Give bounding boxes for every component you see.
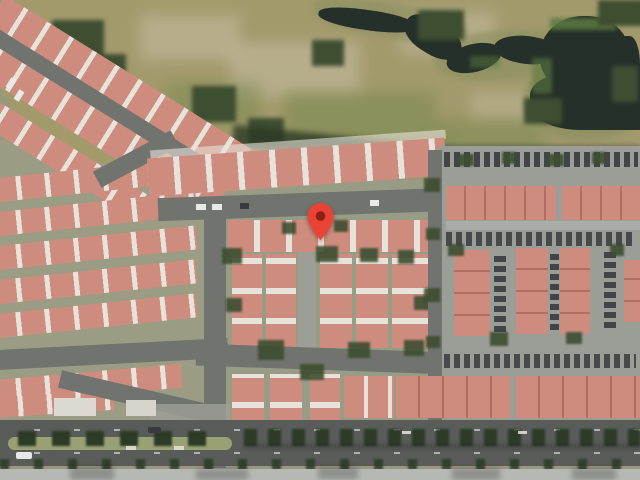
- townhome-column: [266, 254, 296, 348]
- building-white: [54, 398, 96, 416]
- commercial-building: [562, 186, 640, 220]
- walkway: [446, 221, 640, 230]
- parked-car: [212, 204, 222, 210]
- tree: [348, 342, 370, 358]
- sidewalk-tree-shadow: [452, 468, 500, 480]
- pond-algae: [532, 58, 552, 94]
- sidewalk-tree-shadow: [70, 467, 114, 480]
- tree: [258, 340, 284, 360]
- tree: [398, 250, 414, 264]
- car-on-road: [16, 452, 32, 459]
- commercial-building: [560, 248, 590, 334]
- tree: [300, 364, 324, 380]
- field-tree: [598, 0, 640, 26]
- tree: [424, 288, 440, 302]
- commercial-building: [454, 250, 490, 336]
- lane-line: [0, 452, 640, 454]
- tree: [592, 152, 606, 164]
- sidewalk-tree-shadow: [196, 469, 248, 480]
- townhome-row: [344, 376, 394, 418]
- field-tree: [312, 40, 344, 66]
- sidewalk-tree-shadow: [572, 468, 616, 480]
- parked-car: [196, 204, 206, 210]
- parked-cars-row: [446, 232, 636, 246]
- field-tree: [524, 98, 562, 124]
- tree: [424, 178, 440, 192]
- tree: [282, 222, 296, 234]
- location-pin-dot: [315, 211, 325, 221]
- commercial-building: [396, 376, 510, 418]
- alley-vertical: [298, 252, 316, 350]
- tree: [458, 154, 474, 166]
- car-on-road: [148, 427, 161, 433]
- parked-cars-column: [604, 252, 616, 328]
- commercial-building: [446, 186, 556, 220]
- median-tree: [52, 431, 70, 446]
- lane-arrow: [126, 446, 136, 450]
- parked-car: [240, 203, 249, 209]
- tree: [502, 152, 516, 164]
- median-tree: [18, 431, 36, 446]
- parked-cars-column: [494, 252, 506, 332]
- lane-arrow: [174, 446, 184, 450]
- location-pin[interactable]: [307, 203, 334, 240]
- field-tree: [612, 66, 638, 102]
- pond-algae: [470, 56, 500, 68]
- tree: [360, 248, 378, 262]
- tree: [548, 154, 564, 166]
- median-tree: [188, 431, 206, 446]
- townhome-column: [356, 254, 388, 348]
- field-patch-pale: [140, 15, 240, 60]
- parked-cars-row: [444, 354, 636, 368]
- field-tree: [418, 10, 464, 40]
- satellite-map-view[interactable]: [0, 0, 640, 480]
- tree: [448, 244, 464, 256]
- tree: [404, 340, 424, 356]
- tree: [566, 332, 582, 344]
- townhome-column: [320, 254, 352, 348]
- lane-arrow: [402, 431, 411, 434]
- commercial-building: [624, 260, 640, 322]
- median-tree: [86, 431, 104, 446]
- commercial-building: [516, 376, 640, 418]
- location-pin-body: [307, 203, 333, 240]
- tree: [490, 332, 508, 346]
- tree: [316, 246, 338, 262]
- parked-cars-column: [550, 252, 559, 330]
- parked-car: [370, 200, 379, 206]
- tree: [222, 248, 242, 264]
- commercial-building: [516, 248, 548, 334]
- tree: [426, 228, 440, 240]
- tree: [334, 220, 348, 232]
- median-tree: [120, 431, 138, 446]
- lane-arrow: [518, 431, 527, 434]
- median-tree: [154, 431, 172, 446]
- building-white: [126, 400, 156, 416]
- tree: [426, 336, 440, 348]
- tree: [226, 298, 242, 312]
- sidewalk-tree-shadow: [318, 467, 358, 479]
- tree-shadow-band: [244, 444, 640, 449]
- tree: [610, 244, 624, 256]
